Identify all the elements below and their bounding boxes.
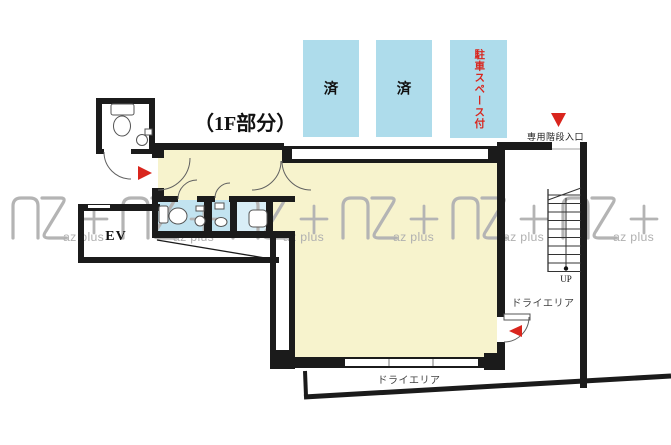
floorplan-page: az plus [0,0,671,445]
parking-status-2: 済 [397,78,412,99]
stair-start-dot [564,266,568,270]
right-outer-wall [580,142,587,388]
main-room [158,148,497,360]
unit-left-wall-upper [152,143,164,158]
up-label: UP [560,274,572,284]
bottom-window [345,359,478,366]
ev-door [88,205,110,208]
toilet-door-arc [104,152,131,179]
floorplan-drawing: az plus [0,0,671,445]
top-window [292,149,488,159]
toilet-tank-icon [111,104,134,115]
toilet-door-opening [104,148,131,155]
bath-toilet-bowl-icon [169,208,187,224]
dry-area-side-label: ドライエリア [512,295,575,310]
parking-status-1: 済 [324,78,339,99]
wc-basin-icon [215,218,227,227]
floor-title: （1F部分） [194,107,296,136]
elevator-label: EV [105,229,126,245]
top-right-wall [497,142,552,150]
bath-sink-icon [195,216,205,226]
toilet-bowl-icon [114,116,131,136]
stair-entrance-label: 専用階段入口 [527,130,584,143]
kitchen-sink-icon [249,210,267,227]
dry-area-bottom-label: ドライエリア [378,372,441,387]
stair-entrance-marker-icon [551,113,566,127]
main-entrance-marker-icon [138,166,152,180]
ev-hall-left-wall [78,204,84,263]
toilet-sink-icon [137,135,148,146]
bath-toilet-tank-icon [159,206,168,223]
slanted-boundary-wall [304,376,671,397]
dry-area-entrance-marker-icon [509,325,522,337]
ev-hall-bottom-wall [78,257,279,263]
parking-status-3: 駐車スペース付 [474,49,485,130]
dry-area-door-leaf [504,314,530,320]
room-fills [155,148,497,360]
